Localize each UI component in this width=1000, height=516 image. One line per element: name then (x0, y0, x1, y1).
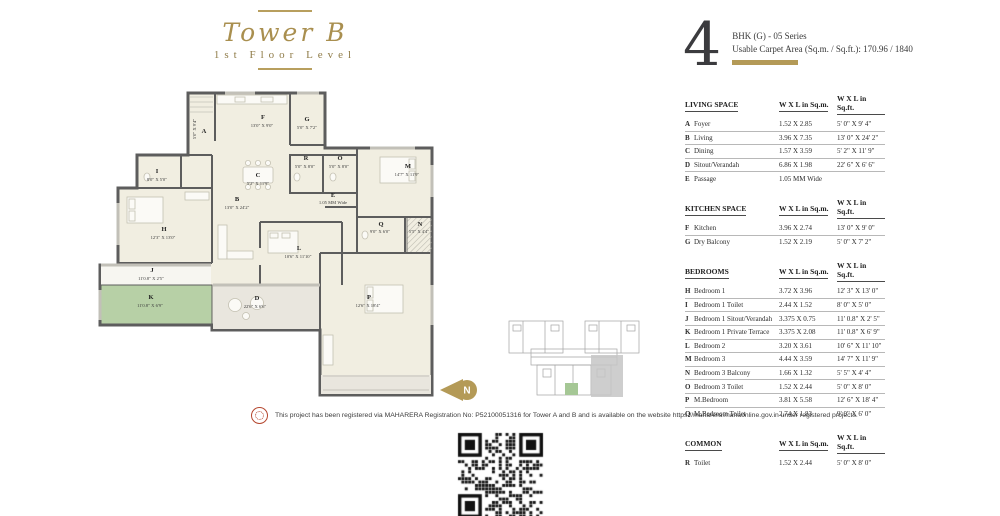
table-row: CDining1.57 X 3.595' 2" X 11' 9" (685, 145, 885, 159)
unit-number: 4 (683, 18, 721, 72)
room-dim-R: 5'0" X 8'0" (295, 164, 315, 169)
room-label-B: B (235, 196, 240, 203)
table-bedrooms: BEDROOMSW X L in Sq.m.W X L in Sq.ft.HBe… (685, 261, 885, 420)
room-label-K: K (148, 294, 153, 301)
room-dim-K: 11'0.8" X 6'9" (137, 303, 163, 308)
room-dim-L: 10'6" X 11'10" (285, 254, 312, 259)
room-dim-I: 8'0" X 5'0" (147, 177, 167, 182)
table-row: RToilet1.52 X 2.445' 0" X 8' 0" (685, 457, 885, 470)
table-row: OBedroom 3 Toilet1.52 X 2.445' 0" X 8' 0… (685, 380, 885, 394)
room-label-Q: Q (378, 221, 383, 228)
room-dim-C: 5'2" X 11'9" (247, 181, 269, 186)
table-row: NBedroom 3 Balcony1.66 X 1.325' 5" X 4' … (685, 367, 885, 381)
table-row: BLiving3.96 X 7.3513' 0" X 24' 2" (685, 132, 885, 146)
room-label-A: A (202, 128, 207, 135)
table-row: JBedroom 1 Sitout/Verandah3.375 X 0.7511… (685, 312, 885, 326)
maharera-seal-icon (251, 407, 268, 424)
compass-icon: N (438, 374, 486, 406)
rera-disclaimer: This project has been registered via MAH… (251, 407, 858, 424)
room-dim-Q: 9'0" X 6'0" (370, 229, 390, 234)
table-header: BEDROOMSW X L in Sq.m.W X L in Sq.ft. (685, 261, 885, 282)
table-header: COMMONW X L in Sq.m.W X L in Sq.ft. (685, 433, 885, 454)
room-label-M: M (405, 163, 411, 170)
room-label-R: R (304, 155, 309, 162)
unit-info: 4 BHK (G) - 05 Series Usable Carpet Area… (683, 18, 913, 72)
room-dim-E: 1.05 MM Wide (319, 200, 347, 205)
room-label-N: N (418, 221, 423, 228)
plan-walls (100, 93, 432, 395)
room-label-L: L (297, 245, 302, 252)
table-row: DSitout/Verandah6.86 X 1.9822' 6" X 6' 6… (685, 159, 885, 173)
gold-accent-bar (732, 60, 798, 65)
room-dim-O: 5'0" X 8'0" (329, 164, 349, 169)
room-label-G: G (304, 116, 309, 123)
room-dim-A: 5'0" X 9'4" (192, 119, 197, 139)
table-common: COMMONW X L in Sq.m.W X L in Sq.ft.RToil… (685, 433, 885, 470)
title-rule-bottom (258, 68, 312, 70)
title-rule-top (258, 10, 312, 12)
unit-series: BHK (G) - 05 Series (732, 30, 913, 43)
room-label-E: E (331, 192, 335, 199)
room-label-F: F (261, 114, 265, 121)
room-dim-M: 14'7" X 11'9" (395, 172, 420, 177)
floor-level: 1st Floor Level (200, 49, 370, 61)
table-row: EPassage1.05 MM Wide (685, 172, 885, 185)
carpet-area: Usable Carpet Area (Sq.m. / Sq.ft.): 170… (732, 43, 913, 56)
table-row: PM.Bedroom3.81 X 5.5812' 6" X 18' 4" (685, 394, 885, 408)
table-living-space: LIVING SPACEW X L in Sq.m.W X L in Sq.ft… (685, 94, 885, 185)
table-row: MBedroom 34.44 X 3.5914' 7" X 11' 9" (685, 353, 885, 367)
room-dim-B: 13'0" X 24'2" (225, 205, 250, 210)
room-label-H: H (161, 226, 166, 233)
dimension-tables: LIVING SPACEW X L in Sq.m.W X L in Sq.ft… (685, 94, 885, 483)
floorplan-page: Tower B 1st Floor Level 4 BHK (G) - 05 S… (0, 0, 1000, 516)
table-row: LBedroom 23.20 X 3.6110' 6" X 11' 10" (685, 340, 885, 354)
table-row: GDry Balcony1.52 X 2.195' 0" X 7' 2" (685, 236, 885, 249)
unit-details: BHK (G) - 05 Series Usable Carpet Area (… (732, 18, 913, 72)
room-label-D: D (255, 295, 260, 302)
table-kitchen-space: KITCHEN SPACEW X L in Sq.m.W X L in Sq.f… (685, 198, 885, 248)
floor-plan: A5'0" X 9'4"B13'0" X 24'2"C5'2" X 11'9"D… (85, 85, 445, 405)
room-label-C: C (256, 172, 261, 179)
qr-code (456, 431, 544, 516)
room-dim-D: 22'6" X 6'6" (244, 304, 267, 309)
keyplan-highlighted-unit (591, 355, 623, 397)
key-plan (503, 315, 645, 403)
table-row: AFoyer1.52 X 2.855' 0" X 9' 4" (685, 118, 885, 132)
title-block: Tower B 1st Floor Level (200, 10, 370, 70)
table-row: IBedroom 1 Toilet2.44 X 1.528' 0" X 5' 0… (685, 299, 885, 313)
disclaimer-text: This project has been registered via MAH… (275, 412, 858, 419)
table-row: HBedroom 13.72 X 3.9612' 3" X 13' 0" (685, 285, 885, 299)
room-dim-P: 12'6" X 18'4" (356, 303, 381, 308)
svg-text:N: N (463, 386, 470, 397)
room-dim-G: 5'0" X 7'2" (297, 125, 317, 130)
table-header: LIVING SPACEW X L in Sq.m.W X L in Sq.ft… (685, 94, 885, 115)
room-label-O: O (337, 155, 342, 162)
room-dim-N: 5'5" X 4'4" (409, 229, 429, 234)
table-header: KITCHEN SPACEW X L in Sq.m.W X L in Sq.f… (685, 198, 885, 219)
room-label-P: P (367, 294, 371, 301)
room-dim-J: 11'0.8" X 2'5" (138, 276, 164, 281)
room-dim-F: 13'0" X 9'0" (251, 123, 274, 128)
table-row: FKitchen3.96 X 2.7413' 0" X 9' 0" (685, 222, 885, 236)
room-dim-H: 12'3" X 13'0" (151, 235, 176, 240)
table-row: KBedroom 1 Private Terrace3.375 X 2.0811… (685, 326, 885, 340)
tower-name: Tower B (200, 18, 370, 47)
keyplan-green-unit (565, 383, 578, 395)
